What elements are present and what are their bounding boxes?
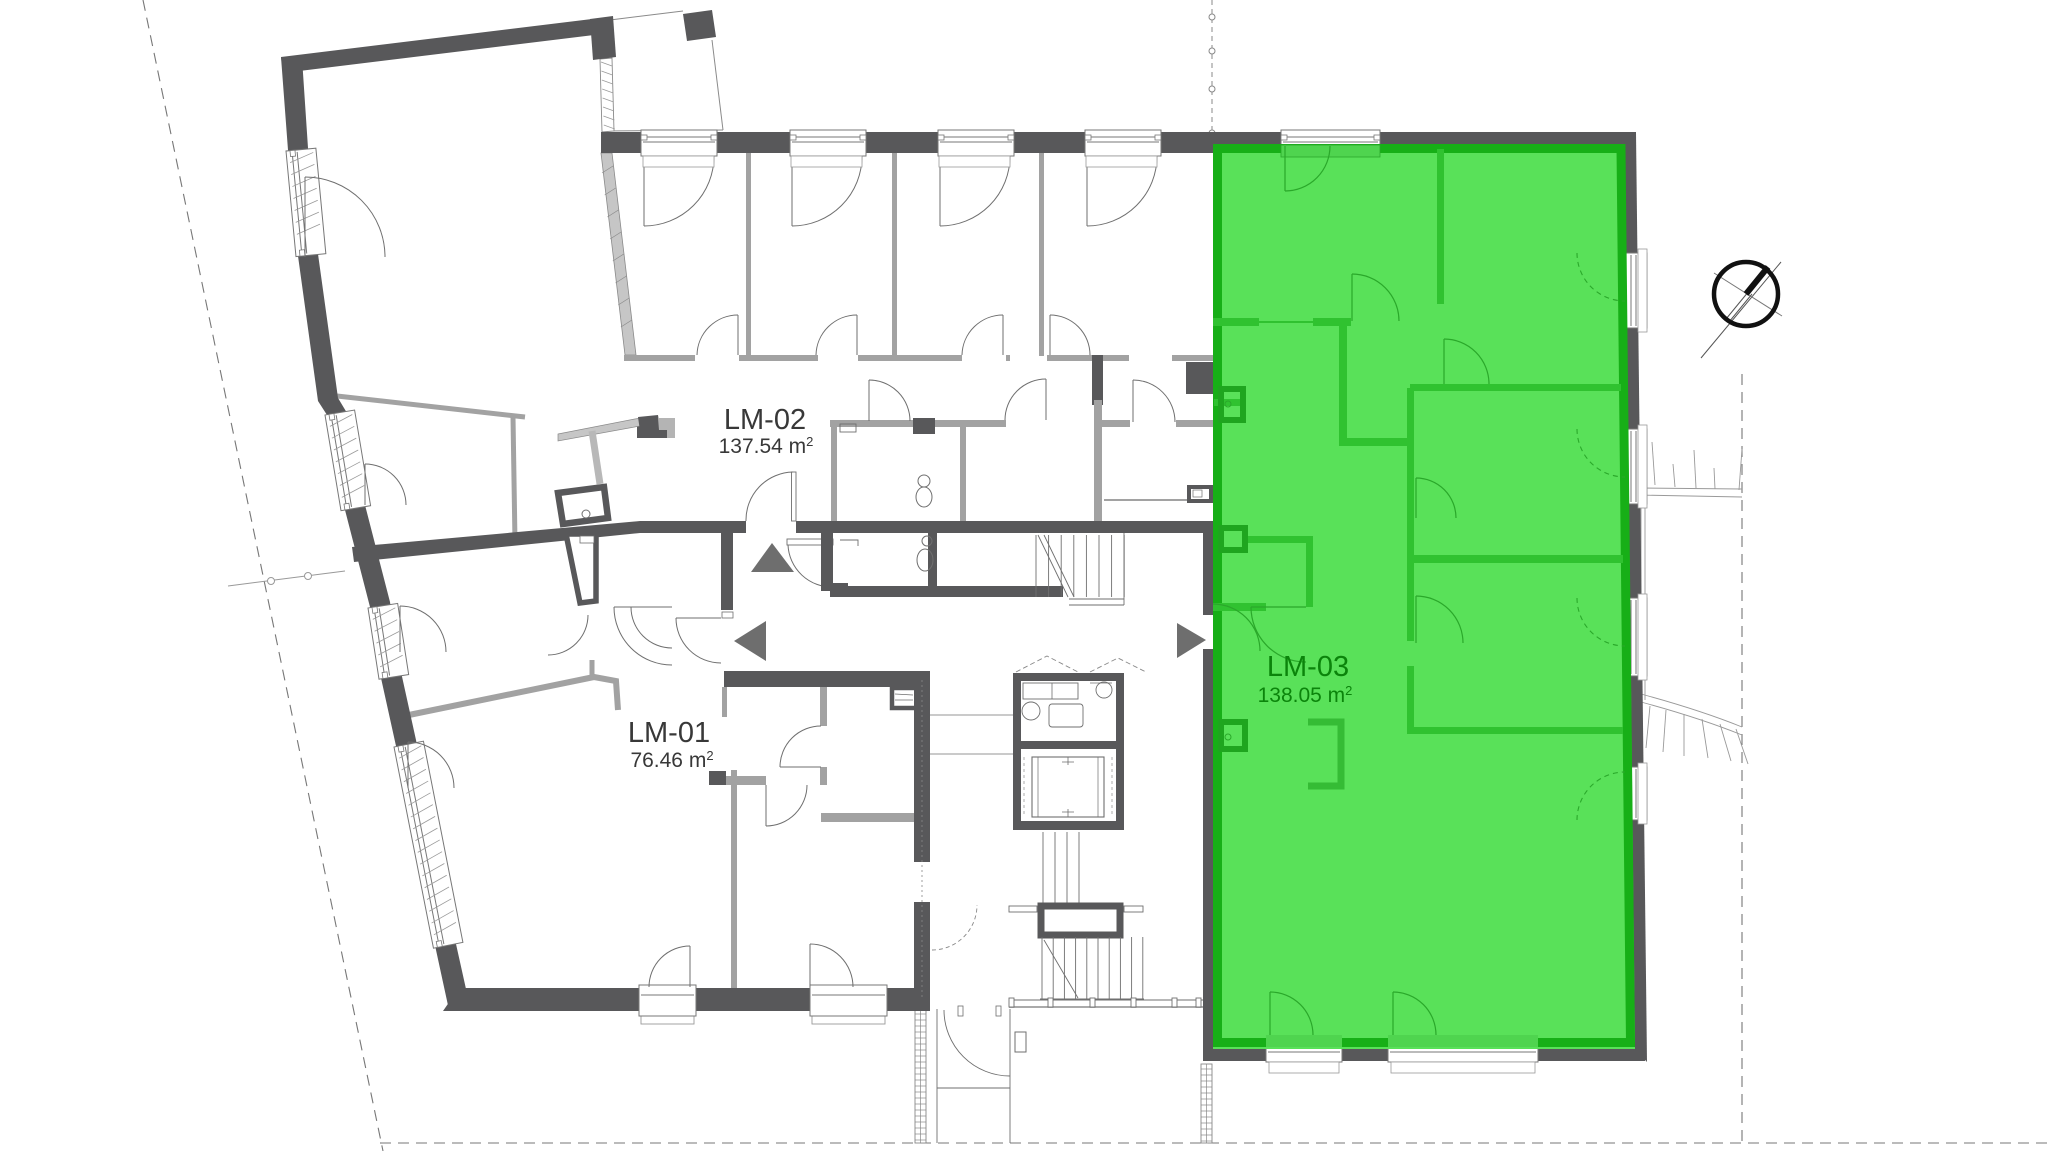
svg-text:LM-03: LM-03 [1267,651,1349,683]
svg-text:LM-01: LM-01 [628,717,710,749]
svg-text:LM-02: LM-02 [724,404,806,436]
svg-text:137.54 m2: 137.54 m2 [719,434,814,458]
svg-text:76.46 m2: 76.46 m2 [630,748,713,772]
svg-text:138.05 m2: 138.05 m2 [1258,683,1353,707]
